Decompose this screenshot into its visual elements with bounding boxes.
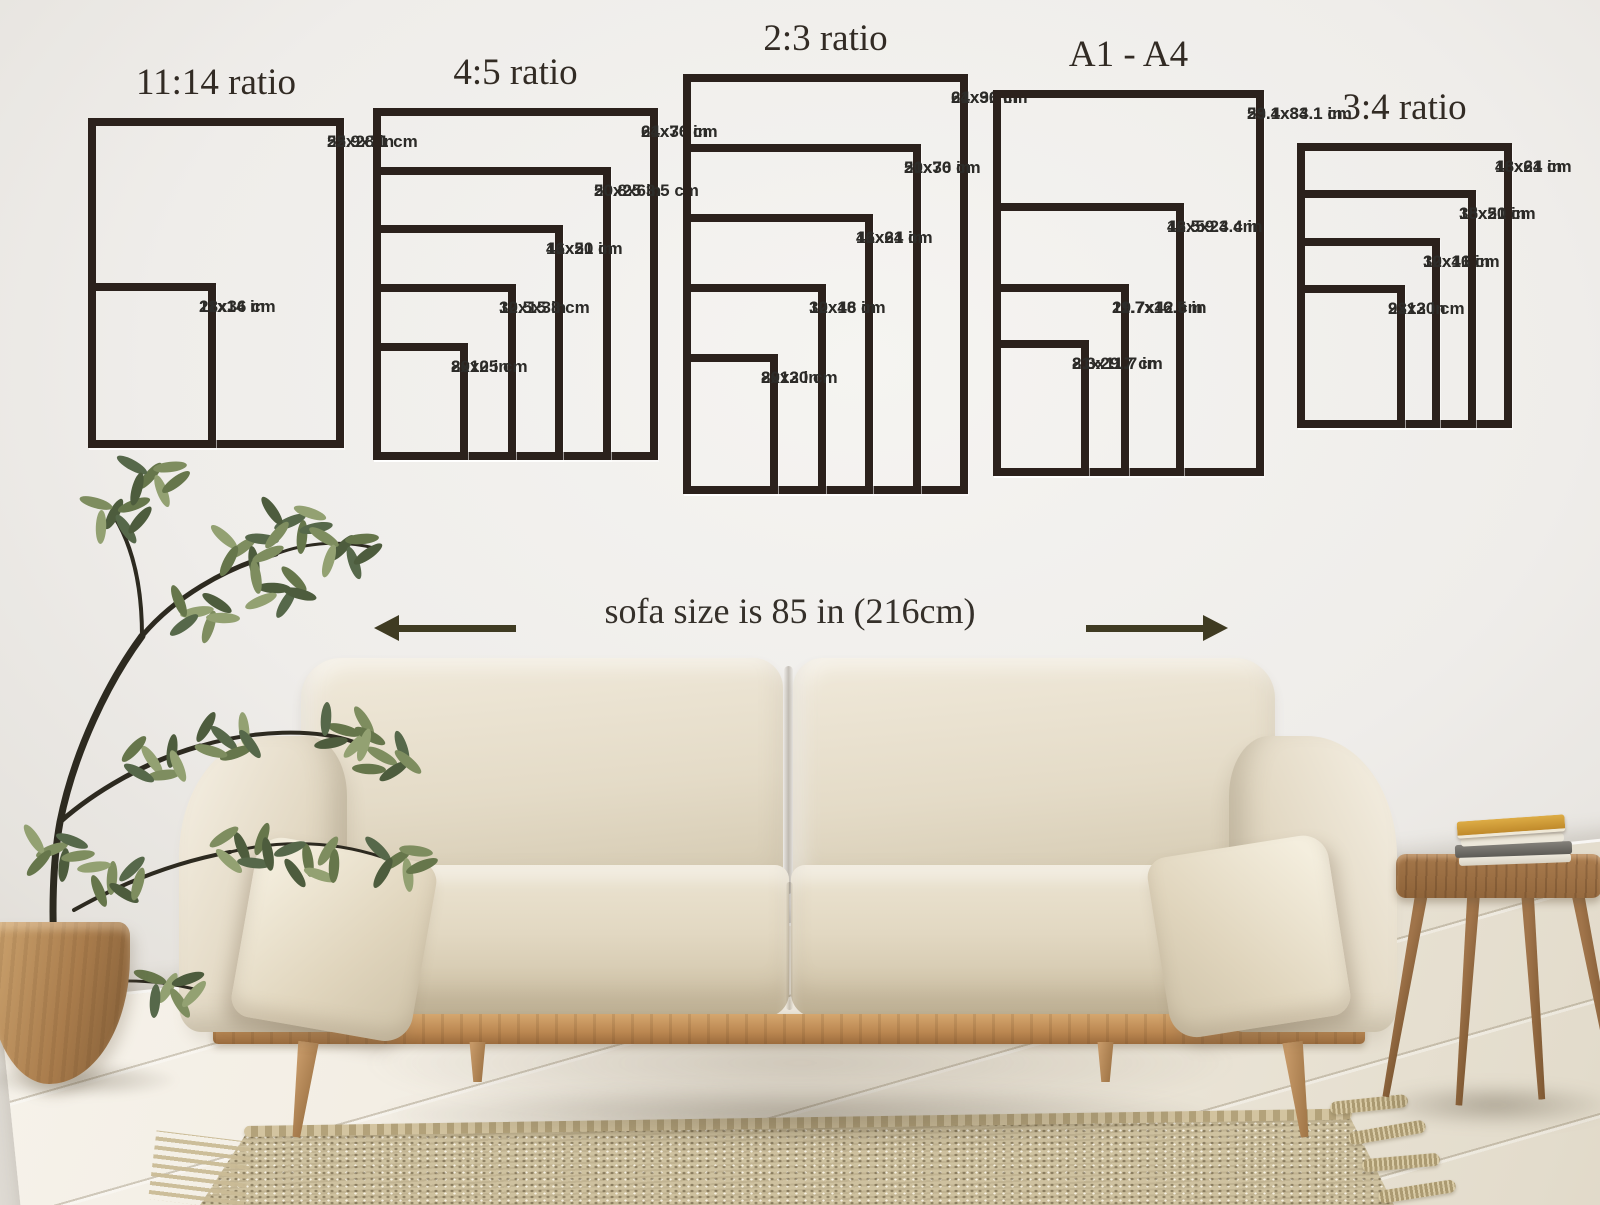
size-group-title: A1 - A4 bbox=[1069, 33, 1188, 76]
size-group-a1-a4: A1 - A4 23.4x33.1 in59.1x84.1 cm16.5x23.… bbox=[993, 90, 1264, 476]
size-group-3-4: 3:4 ratio 18x24 in46x61 cm15x20 in38x51 … bbox=[1297, 143, 1512, 428]
sofa-leg bbox=[1095, 1042, 1116, 1082]
sofa-size-note: sofa size is 85 in (216cm) bbox=[480, 590, 1100, 632]
arrow-right-icon bbox=[1086, 625, 1204, 632]
size-group-title: 2:3 ratio bbox=[763, 17, 887, 60]
throw-pillow-right bbox=[1145, 832, 1353, 1041]
size-group-4-5: 4:5 ratio 24x30 in61x76 cm20x25 in50.8x6… bbox=[373, 108, 658, 460]
size-group-title: 4:5 ratio bbox=[453, 51, 577, 94]
size-frame: 11x14 in28x36 cm bbox=[88, 283, 216, 448]
size-frame: 9x12 in23x30 cm bbox=[1297, 285, 1405, 428]
size-group-11-14: 11:14 ratio 22x28 in55.9x71 cm11x14 in28… bbox=[88, 118, 344, 448]
size-group-title: 3:4 ratio bbox=[1342, 86, 1466, 129]
sofa-leg bbox=[1279, 1040, 1317, 1139]
size-group-title: 11:14 ratio bbox=[136, 61, 296, 104]
size-group-2-3: 2:3 ratio 24x36 in61x91 cm20x30 in51x76 … bbox=[683, 74, 968, 494]
size-frame: 8.3x11.7 in21x29.7 cm bbox=[993, 340, 1089, 476]
size-frame: 8x12 in20x30 cm bbox=[683, 354, 778, 494]
sofa-back-seam bbox=[784, 666, 793, 894]
living-room-size-guide: 11:14 ratio 22x28 in55.9x71 cm11x14 in28… bbox=[0, 0, 1600, 1205]
sofa-seat-seam bbox=[786, 882, 793, 1010]
